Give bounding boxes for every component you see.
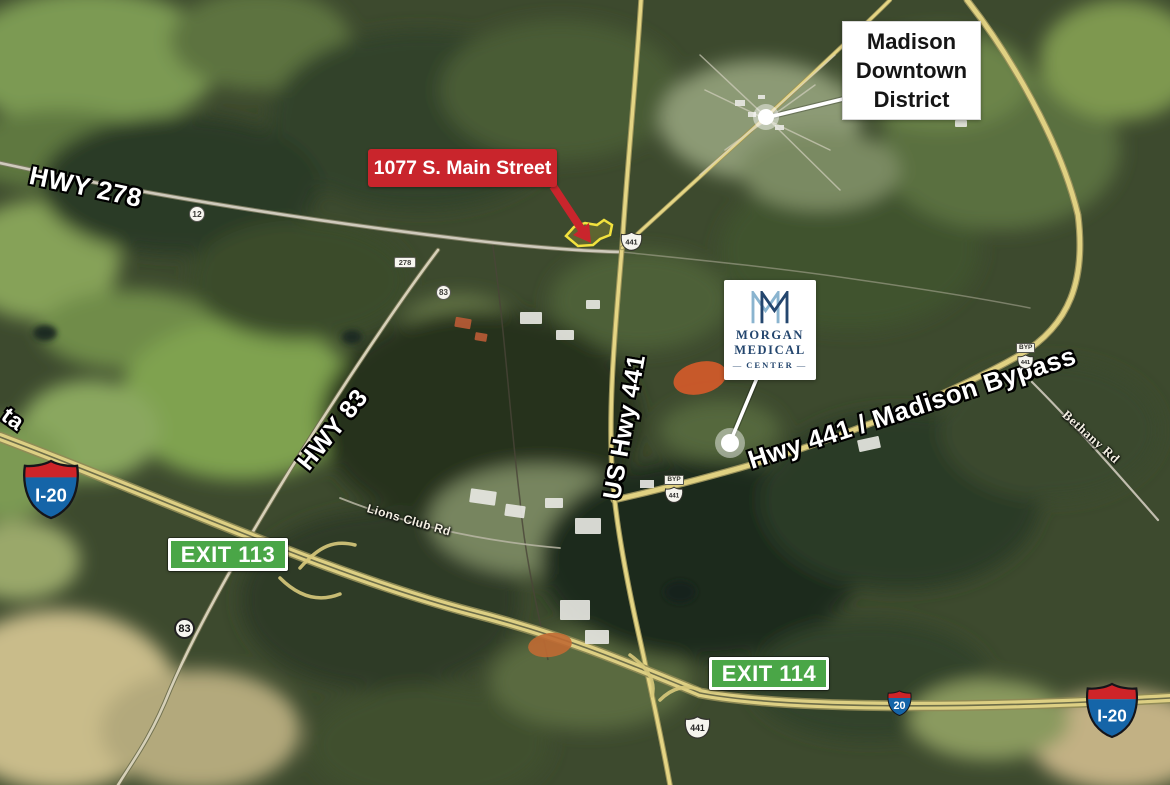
us441-shield-south: 441 bbox=[684, 715, 711, 744]
byp441-east-banner: BYP bbox=[1016, 343, 1035, 353]
us441-shield-main: 441 bbox=[620, 231, 643, 256]
morgan-name-line-3: — CENTER — bbox=[733, 360, 807, 370]
us441-main-text: 441 bbox=[625, 237, 637, 246]
exit-114-badge: EXIT 114 bbox=[709, 657, 829, 690]
morgan-name-line-1: MORGAN bbox=[736, 328, 804, 343]
downtown-line-1: Madison bbox=[867, 27, 956, 56]
sr278-marker: 278 bbox=[394, 257, 416, 268]
byp441-east-text: 441 bbox=[1021, 360, 1030, 366]
byp441-shield-east: BYP 441 bbox=[1016, 343, 1035, 369]
i20-small-text: 20 bbox=[893, 700, 905, 712]
i20-left-text: I-20 bbox=[35, 485, 67, 506]
byp441-mid-text: 441 bbox=[669, 492, 680, 499]
byp441-shield-mid: BYP 441 bbox=[664, 475, 684, 503]
byp441-east-shield: 441 bbox=[1017, 354, 1034, 369]
downtown-line-2: Downtown bbox=[856, 56, 967, 85]
aerial-map: HWY 278 HWY 83 US Hwy 441 Hwy 441 / Madi… bbox=[0, 0, 1170, 785]
morgan-monogram-icon bbox=[750, 291, 790, 325]
byp441-mid-shield: 441 bbox=[664, 486, 684, 503]
byp441-mid-banner: BYP bbox=[664, 475, 683, 485]
i20-shield-small: 20 bbox=[887, 690, 912, 721]
sr83-marker-north: 83 bbox=[436, 285, 451, 300]
i20-shield-right: I-20 bbox=[1085, 681, 1139, 744]
morgan-center-text: CENTER bbox=[746, 360, 793, 370]
downtown-district-callout: Madison Downtown District bbox=[842, 21, 981, 120]
dash-right: — bbox=[797, 360, 808, 370]
morgan-medical-callout: MORGAN MEDICAL — CENTER — bbox=[724, 280, 816, 380]
i20-right-text: I-20 bbox=[1097, 707, 1126, 726]
downtown-line-3: District bbox=[874, 85, 950, 114]
exit-113-badge: EXIT 113 bbox=[168, 538, 288, 571]
us441-south-text: 441 bbox=[690, 723, 705, 733]
morgan-name-line-2: MEDICAL bbox=[734, 343, 806, 358]
site-address-callout: 1077 S. Main Street bbox=[368, 149, 557, 187]
sr83-marker-south: 83 bbox=[174, 618, 195, 639]
i20-shield-left: I-20 bbox=[22, 458, 80, 525]
sr12-marker: 12 bbox=[189, 206, 205, 222]
dash-left: — bbox=[733, 360, 744, 370]
